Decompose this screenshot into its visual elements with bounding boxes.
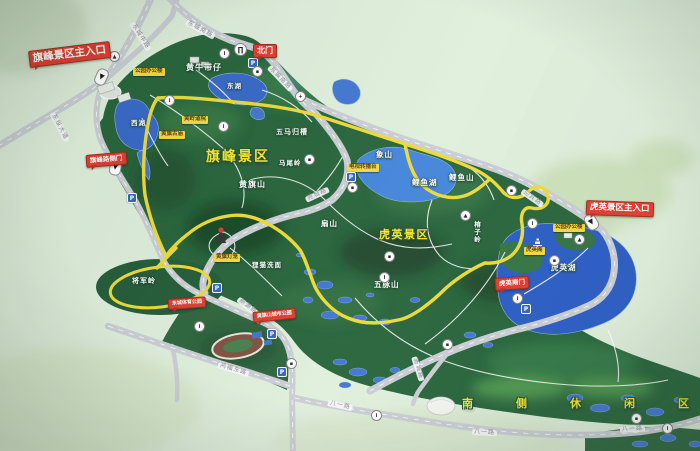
poi-icon: i: [512, 293, 523, 304]
poi-icon: i: [194, 321, 205, 332]
region-title: 旗峰景区: [206, 150, 270, 164]
entrance-label-pointer: [591, 213, 596, 218]
facility-label: 电视转播台: [347, 164, 379, 172]
entrance-label-pointer: [500, 288, 505, 293]
park-map-sign: const data = JSON.parse(document.getElem…: [0, 0, 700, 451]
terrain-label: 榕子岭: [473, 221, 480, 244]
parking-icon: P: [267, 329, 277, 339]
entrance-label-pointer: [35, 64, 41, 70]
entrance-label: 虎英景区主入口: [586, 200, 654, 217]
parking-icon: P: [521, 304, 531, 314]
poi-icon: ▪: [286, 358, 297, 369]
terrain-label: 鲤鱼湖: [412, 179, 438, 187]
poi-icon: ▪: [631, 413, 642, 424]
facility-label: 公园办公楼: [133, 68, 165, 76]
facility-label: 虎英阁: [524, 247, 545, 255]
terrain-label: 东湖: [227, 83, 242, 90]
facility-label: 公园办公楼: [553, 224, 585, 232]
poi-icon: i: [164, 95, 175, 106]
poi-icon: i: [662, 423, 673, 434]
poi-icon: i: [379, 272, 390, 283]
region-title: 南侧休闲区: [462, 398, 700, 409]
poi-icon: ▪: [442, 339, 453, 350]
poi-icon: i: [219, 48, 230, 59]
terrain-label: 黄牛带仔: [186, 64, 222, 72]
parking-icon: P: [346, 172, 356, 182]
terrain-label: 黄旗山: [239, 181, 266, 189]
poi-icon: ▲: [460, 210, 471, 221]
region-title: 虎英景区: [379, 229, 429, 240]
poi-icon: ▪: [304, 154, 315, 165]
entrance-label-pointer: [91, 165, 96, 170]
poi-icon: ▪: [252, 66, 263, 77]
poi-icon: i: [527, 218, 538, 229]
entrance-label: 北门: [253, 44, 277, 58]
road-name-label: 八一路: [472, 429, 497, 436]
terrain-label: 五马归槽: [276, 129, 308, 136]
entrance-label: 虎英南门: [495, 276, 530, 291]
entrance-label-pointer: [173, 307, 178, 312]
poi-icon: ▪: [506, 185, 517, 196]
red-lantern: [218, 227, 223, 232]
parking-icon: P: [277, 367, 287, 377]
terrain-label: 西湖: [131, 120, 146, 127]
poi-icon: i: [218, 121, 229, 132]
poi-icon: ▪: [549, 255, 560, 266]
facility-label: 黄旗灯笼: [214, 254, 240, 262]
entrance-label-pointer: [258, 320, 263, 325]
poi-icon: ▪: [384, 251, 395, 262]
facility-label: 黄岭道院: [182, 116, 208, 124]
parking-icon: P: [127, 193, 137, 203]
terrain-label: 将军岭: [132, 278, 156, 285]
terrain-label: 狸猫洗面: [252, 262, 282, 269]
terrain-label: 扇山: [321, 220, 338, 228]
terrain-label: 鲤鱼山: [449, 174, 475, 182]
poi-icon: ▪: [347, 182, 358, 193]
poi-icon: ▲: [574, 234, 585, 245]
poi-icon: i: [371, 410, 382, 421]
north-gate-icon: ∏: [234, 43, 247, 56]
poi-icon: +: [295, 91, 306, 102]
parking-icon: P: [212, 283, 222, 293]
entrance-label-pointer: [258, 56, 263, 61]
terrain-label: 象山: [376, 151, 393, 159]
facility-label: 黄旗古庙: [159, 131, 185, 139]
terrain-label: 马尾岭: [279, 160, 302, 167]
